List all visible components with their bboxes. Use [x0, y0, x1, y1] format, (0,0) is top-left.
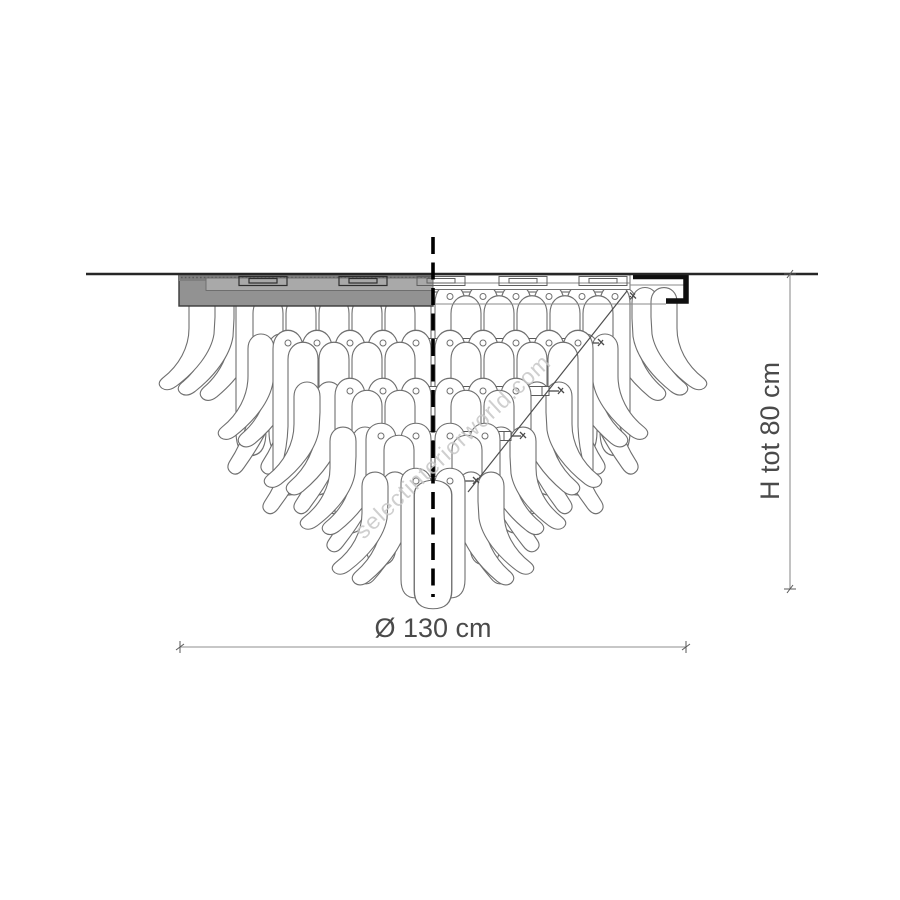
petal-hole [513, 294, 519, 300]
dimension-height: H tot 80 cm [755, 270, 796, 593]
petal-hole [285, 340, 291, 346]
petal-hole [447, 478, 453, 484]
petal-hole [480, 294, 486, 300]
petal-hole [314, 340, 320, 346]
petal-hole [546, 340, 552, 346]
frame-plate [433, 275, 630, 290]
petal-hole [380, 388, 386, 394]
dimension-diameter: Ø 130 cm [176, 613, 690, 653]
petal-hole [413, 340, 419, 346]
petal-hole [612, 294, 618, 300]
petal-hole [480, 340, 486, 346]
petal-hole [413, 388, 419, 394]
petal-hole [513, 340, 519, 346]
diameter-label: Ø 130 cm [374, 613, 491, 643]
petal-hole [347, 340, 353, 346]
petal-hole [347, 388, 353, 394]
petal-hole [378, 433, 384, 439]
canopy-recess [206, 278, 433, 291]
petal-hole [480, 388, 486, 394]
petal-hole [447, 340, 453, 346]
petal-hole [579, 294, 585, 300]
petal-hole [546, 294, 552, 300]
petal-hole [575, 340, 581, 346]
petal-hole [447, 388, 453, 394]
height-label: H tot 80 cm [755, 362, 785, 500]
technical-drawing-page: Ø 130 cm H tot 80 cm selectinteriorworld… [0, 0, 900, 900]
petal-hole [380, 340, 386, 346]
petal-hole [413, 433, 419, 439]
chandelier-elevation-drawing: Ø 130 cm H tot 80 cm selectinteriorworld… [0, 0, 900, 900]
petal-hole [447, 294, 453, 300]
canopy-left-section [179, 275, 433, 306]
